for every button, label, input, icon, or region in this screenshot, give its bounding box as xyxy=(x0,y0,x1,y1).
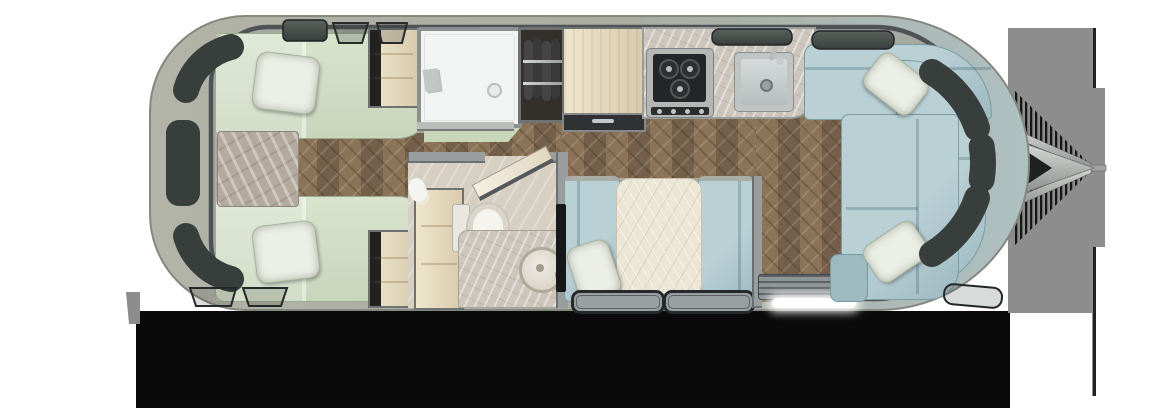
galley-sink xyxy=(734,52,794,112)
wardrobe-bottom-open-side xyxy=(370,232,381,306)
nightstand xyxy=(217,131,299,207)
sink-faucet-base xyxy=(776,57,784,65)
garment xyxy=(533,38,542,98)
wardrobe-top-open-side xyxy=(370,30,381,106)
bathroom-wall-top xyxy=(408,152,485,163)
refrigerator-vent xyxy=(562,113,646,132)
sink-drain xyxy=(760,79,773,92)
cooktop-knob-rail xyxy=(651,107,709,115)
entry-step-mat xyxy=(758,274,840,300)
dinette-floor-mat-right xyxy=(663,290,755,314)
jack-shadow-line-upper xyxy=(1093,28,1097,88)
shower-drain xyxy=(487,83,502,98)
tv-panel xyxy=(556,204,566,292)
cooktop xyxy=(646,48,714,118)
wardrobe-top xyxy=(368,28,420,108)
trailer-floorplan xyxy=(0,0,1170,408)
ground-shadow xyxy=(136,311,1010,408)
dinette-floor-mat-left xyxy=(571,290,665,314)
rear-shadow-wedge xyxy=(126,292,140,324)
shower xyxy=(417,27,522,128)
hanging-closet xyxy=(518,27,568,123)
closet-rod-upper xyxy=(523,60,563,63)
bathroom-sink-drain xyxy=(536,264,544,272)
garment xyxy=(542,41,551,101)
shower-sill xyxy=(417,122,514,131)
cooktop-surface xyxy=(653,54,706,102)
shower-valve xyxy=(423,68,441,92)
bed-pillow-top xyxy=(251,50,322,115)
bathroom-sink-counter xyxy=(458,230,562,308)
dinette-table xyxy=(616,178,702,298)
garment xyxy=(524,40,533,100)
garment xyxy=(551,39,560,99)
closet-rod-lower xyxy=(523,82,563,85)
dinette-bench-right xyxy=(698,176,754,302)
bed-pillow-bottom xyxy=(251,219,322,284)
sofa-chaise xyxy=(830,254,868,302)
refrigerator-vent-handle xyxy=(592,119,614,123)
refrigerator-pantry xyxy=(562,27,646,117)
jack-shadow-line-lower xyxy=(1093,247,1097,396)
